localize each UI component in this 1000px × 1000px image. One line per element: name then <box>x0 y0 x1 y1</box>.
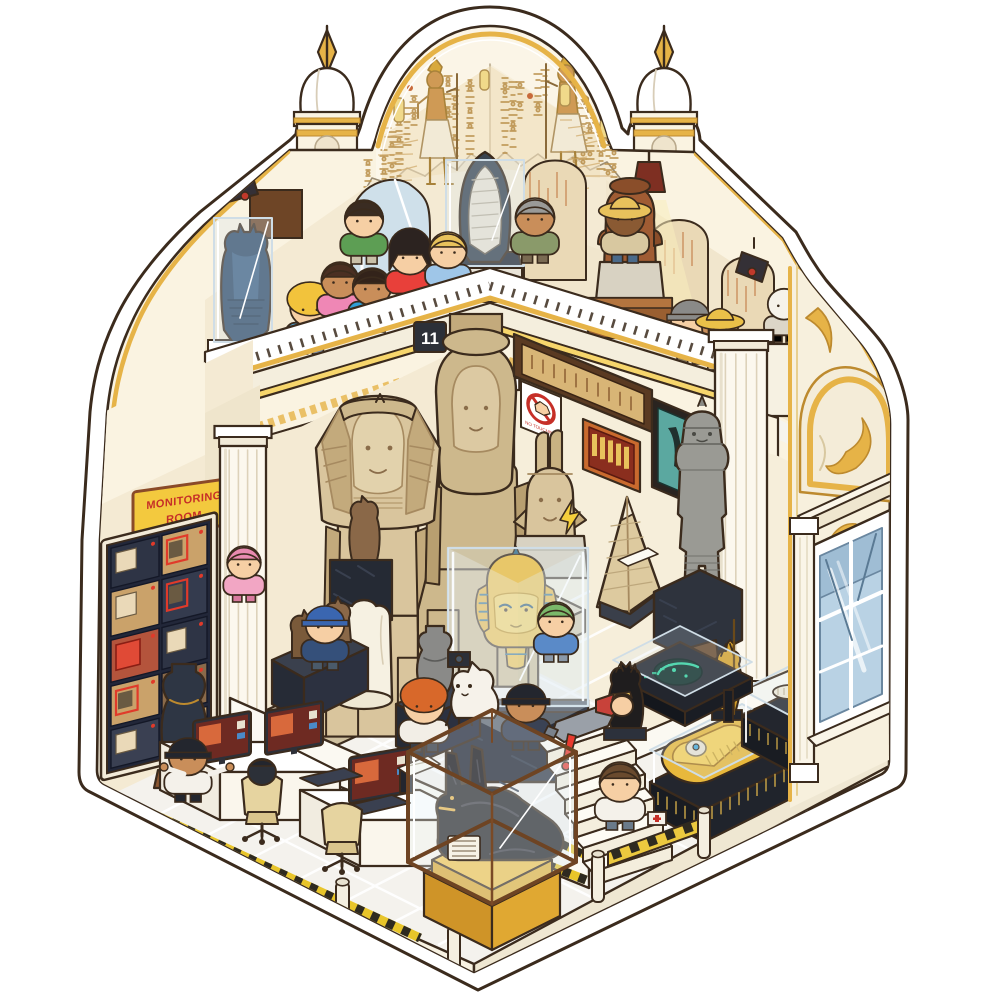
svg-text:11: 11 <box>421 329 439 348</box>
